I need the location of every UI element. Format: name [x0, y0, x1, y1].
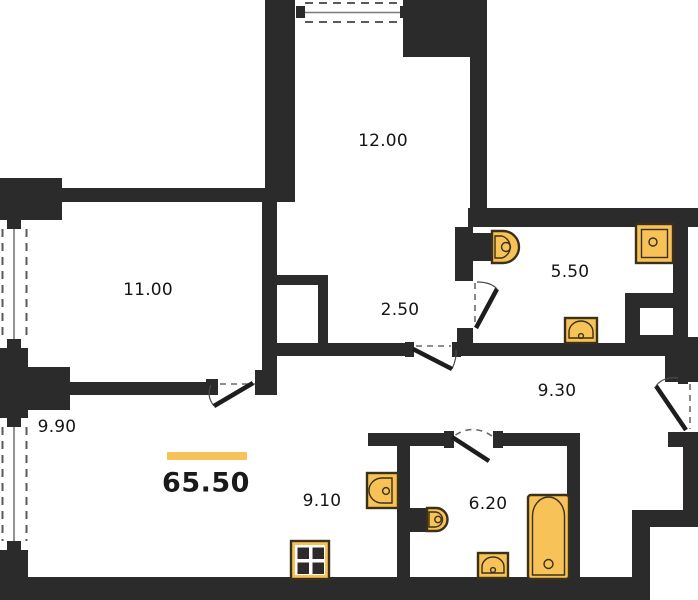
kitchen-sink-icon — [367, 473, 398, 508]
floor-plan-drawing — [0, 0, 698, 600]
window-top — [305, 3, 400, 22]
floor-plan: 12.00 11.00 2.50 5.50 9.30 9.90 9.10 6.2… — [0, 0, 698, 600]
washbasin-bathroom-icon — [565, 318, 597, 343]
room-area-label-kitchen: 9.10 — [303, 491, 342, 511]
room-area-label-hall: 2.50 — [381, 300, 420, 320]
washbasin-wc-icon — [478, 553, 508, 578]
bathtub-icon — [528, 495, 569, 579]
toilet-wc-icon — [407, 508, 448, 532]
total-area-label: 65.50 — [162, 468, 250, 499]
walls — [0, 0, 698, 600]
room-area-label-corridor: 9.30 — [538, 381, 577, 401]
window-left-upper — [3, 229, 27, 339]
stove-icon — [291, 541, 329, 579]
room-area-label-wc: 6.20 — [469, 494, 508, 514]
door-corridor — [413, 346, 456, 369]
room-area-label-bathroom: 5.50 — [551, 262, 590, 282]
door-bathroom — [475, 282, 497, 328]
room-area-label-room-upper: 12.00 — [358, 131, 408, 151]
toilet-bathroom-icon — [473, 231, 519, 263]
total-area-underline — [167, 452, 247, 460]
door-entrance — [656, 377, 690, 430]
room-area-label-living-left: 9.90 — [38, 417, 77, 437]
door-wc — [452, 430, 492, 462]
window-left-lower — [3, 427, 27, 541]
room-area-label-room-left: 11.00 — [123, 280, 173, 300]
shower-tray-icon — [636, 224, 673, 263]
